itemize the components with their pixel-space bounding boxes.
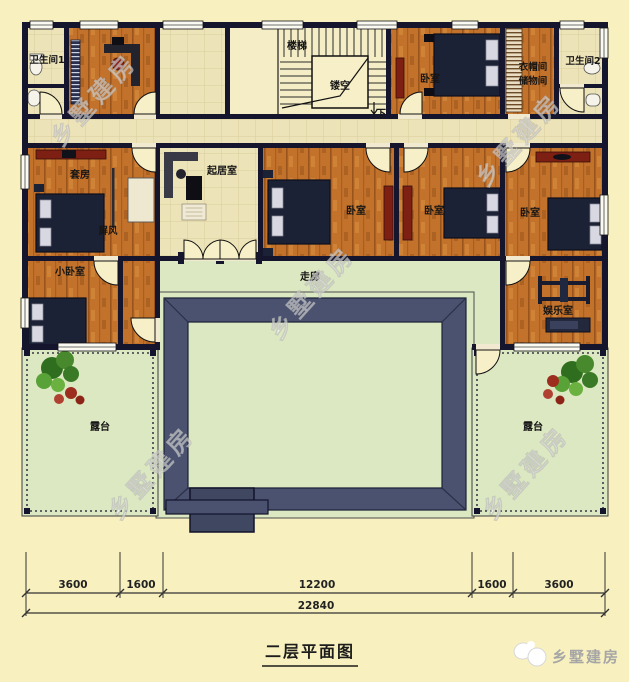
dim-seg-1: 3600 (58, 579, 87, 591)
pillow (272, 216, 283, 236)
floor-plan-page: 卫生间1 楼梯 镂空 下 卧室 衣帽间 储物间 卫生间2 套房 屏风 起居室 卧… (0, 0, 629, 682)
chair-icon (176, 169, 186, 179)
label-bedroom-top: 卧室 (420, 72, 440, 85)
pillow (486, 66, 498, 86)
label-entertainment: 娱乐室 (543, 304, 573, 317)
nightstand (263, 248, 273, 256)
logo-mark-icon (527, 641, 535, 649)
brand-logo: 乡墅建房 (512, 641, 620, 666)
courtyard (156, 292, 474, 518)
nightstand (263, 170, 273, 178)
label-cloakroom-2: 储物间 (519, 75, 548, 87)
label-bedroom-a: 卧室 (346, 204, 366, 217)
treadmill-belt (550, 321, 578, 329)
pillow (32, 326, 43, 342)
tv-table (186, 176, 202, 200)
label-suite: 套房 (69, 168, 90, 181)
dimension-block: 3600 1600 12200 1600 3600 22840 (22, 552, 609, 617)
cabinet-icon (384, 186, 393, 240)
cabinet-icon (403, 186, 412, 240)
pillow (487, 216, 498, 233)
pillow (590, 226, 601, 244)
logo-mark-icon (528, 648, 546, 666)
chimney-bar (166, 500, 268, 514)
pillow (272, 188, 283, 208)
dim-seg-5: 3600 (544, 579, 573, 591)
gym-bench (560, 278, 568, 302)
desk-monitor (112, 37, 124, 45)
label-bathroom1: 卫生间1 (29, 54, 64, 66)
dresser-item (553, 154, 571, 160)
nightstand (424, 88, 434, 96)
label-terrace-left: 露台 (90, 420, 110, 433)
brand-name: 乡墅建房 (552, 648, 620, 666)
pillow (40, 200, 51, 218)
dim-seg-3: 12200 (299, 579, 336, 591)
label-stairs: 楼梯 (287, 39, 307, 52)
pc-desk-return (164, 152, 173, 198)
label-small-bedroom: 小卧室 (54, 265, 85, 278)
label-living: 起居室 (206, 164, 237, 177)
screen-divider (112, 168, 115, 228)
cabinet-white (128, 178, 154, 222)
label-bedroom-c: 卧室 (520, 206, 540, 219)
cabinet-icon (396, 58, 404, 98)
label-cloakroom-1: 衣帽间 (519, 61, 548, 73)
sink-icon (586, 94, 600, 106)
pillow (486, 40, 498, 60)
pillow (40, 228, 51, 246)
label-screen: 屏风 (98, 226, 118, 237)
label-bedroom-b: 卧室 (424, 204, 444, 217)
label-terrace-right: 露台 (523, 420, 543, 433)
sink-icon (28, 90, 40, 106)
label-bathroom2: 卫生间2 (565, 55, 600, 67)
dim-total: 22840 (298, 600, 335, 612)
pillow (32, 304, 43, 320)
nightstand (34, 184, 44, 192)
pillow (487, 194, 498, 211)
label-void: 镂空 (329, 79, 350, 92)
corridor-right-link (474, 259, 504, 348)
page-title: 二层平面图 (265, 642, 355, 661)
dim-seg-4: 1600 (477, 579, 506, 591)
dim-seg-2: 1600 (126, 579, 155, 591)
label-down: 下 (376, 108, 386, 120)
nightstand (424, 34, 434, 42)
pillow (590, 204, 601, 222)
floor-plan: 卫生间1 楼梯 镂空 下 卧室 衣帽间 储物间 卫生间2 套房 屏风 起居室 卧… (0, 0, 629, 682)
